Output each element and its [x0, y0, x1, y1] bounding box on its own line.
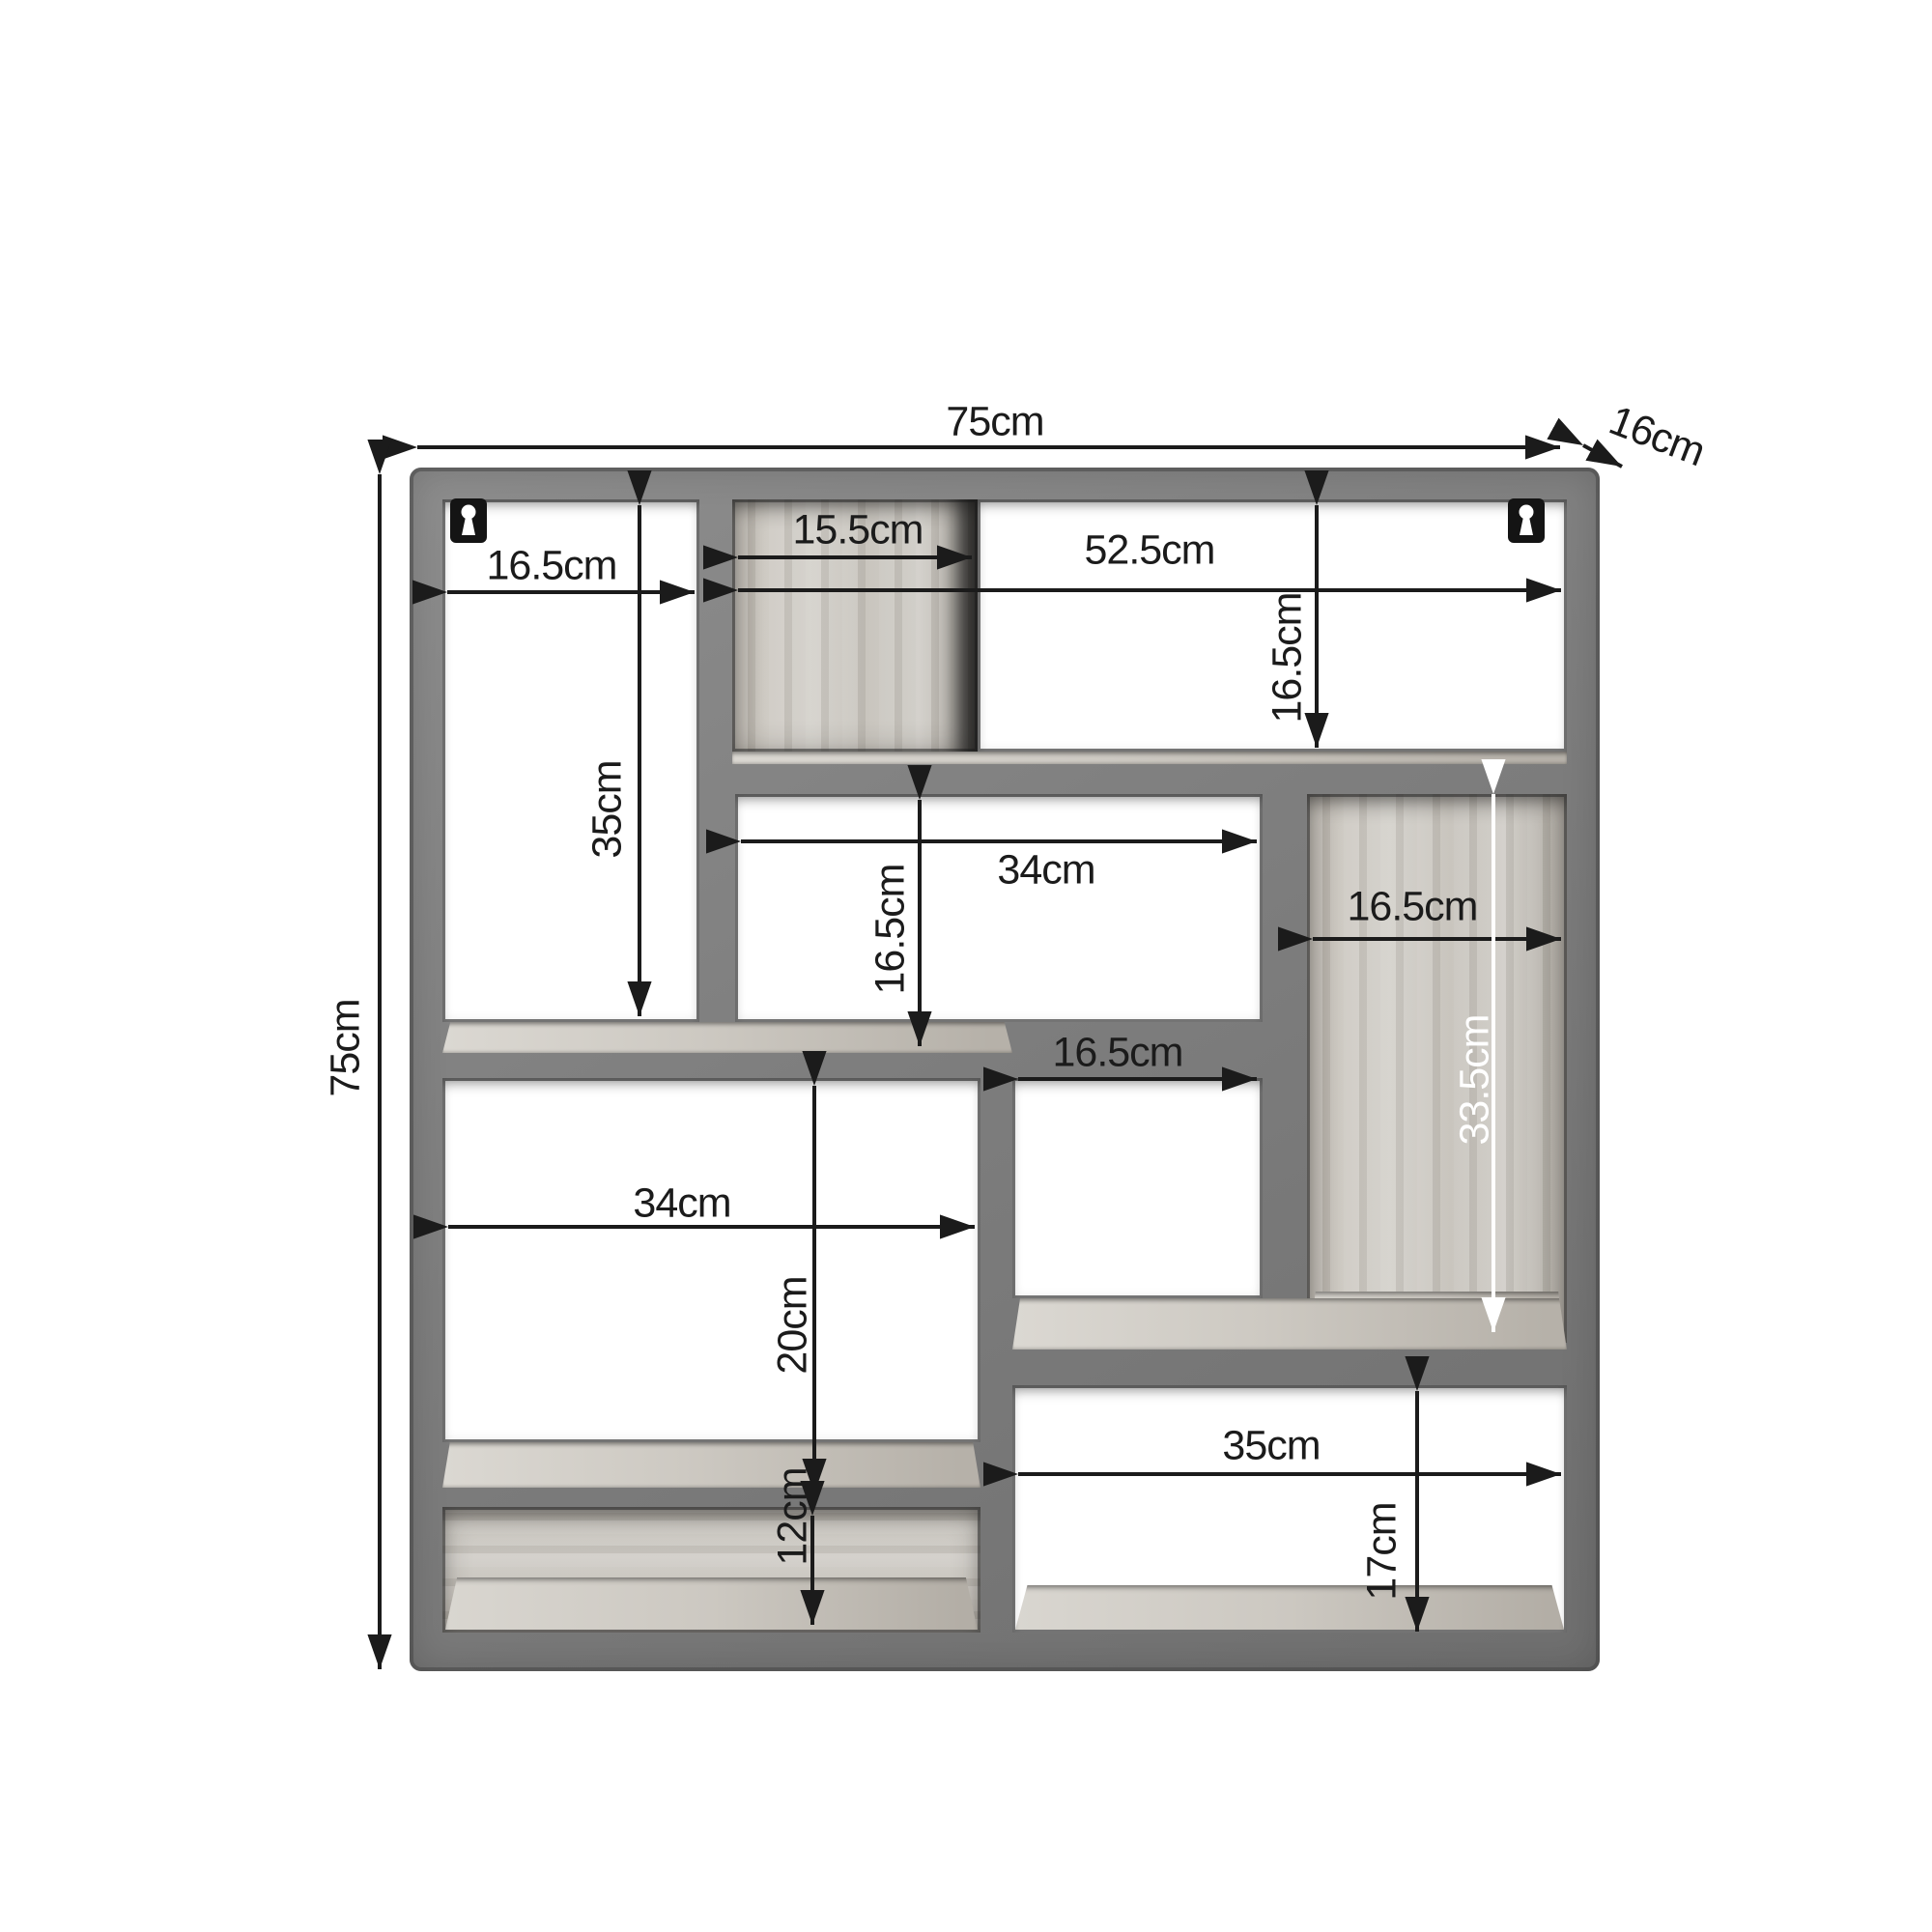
wood-back-panel-bottom-left: [442, 1507, 980, 1633]
dimension-diagram: 75cm 16cm 75cm 16.5cm 15.5cm 52.5cm 16.5…: [0, 0, 1932, 1932]
dimension-label-overall-depth: 16cm: [1604, 400, 1710, 473]
dimension-label-bottom-right-height: 17cm: [1362, 1502, 1404, 1600]
dimension-label-middle-height: 16.5cm: [870, 864, 912, 994]
dimension-label-left-column-height: 35cm: [587, 760, 629, 858]
dimension-label-step-width: 16.5cm: [1052, 1033, 1182, 1074]
dimension-label-middle-width: 34cm: [997, 850, 1094, 892]
dimension-label-bottom-left-height: 12cm: [773, 1467, 814, 1565]
dimension-label-top-left-width: 16.5cm: [486, 546, 616, 587]
dimension-label-right-column-width: 16.5cm: [1347, 887, 1477, 928]
shelf-frame: [410, 468, 1600, 1671]
dimension-label-top-right-width: 52.5cm: [1084, 530, 1214, 572]
shelf-surface: [442, 1022, 1012, 1053]
dimension-label-right-column-height: 33.5cm: [1455, 1014, 1496, 1145]
shelf-surface: [442, 1442, 980, 1488]
wood-back-panel-right-column: [1307, 794, 1567, 1343]
dimension-label-top-panel-width: 15.5cm: [792, 510, 923, 552]
compartment-lower-left: [442, 1078, 980, 1442]
compartment-step: [1012, 1078, 1263, 1298]
keyhole-hanger-icon: [450, 498, 487, 545]
dimension-label-bottom-right-width: 35cm: [1222, 1426, 1320, 1467]
dimension-label-overall-height: 75cm: [326, 999, 367, 1096]
keyhole-hanger-icon: [1508, 498, 1545, 545]
shelf-surface: [1015, 1585, 1564, 1630]
dimension-label-top-right-height: 16.5cm: [1267, 592, 1309, 723]
shelf-surface: [445, 1577, 978, 1630]
shelf-surface: [732, 752, 1567, 764]
dimension-label-lower-left-width: 34cm: [633, 1183, 730, 1225]
shelf-surface: [1012, 1298, 1567, 1350]
dimension-label-lower-left-height: 20cm: [773, 1276, 814, 1374]
dimension-label-overall-width: 75cm: [946, 402, 1043, 443]
compartment-middle: [735, 794, 1263, 1022]
